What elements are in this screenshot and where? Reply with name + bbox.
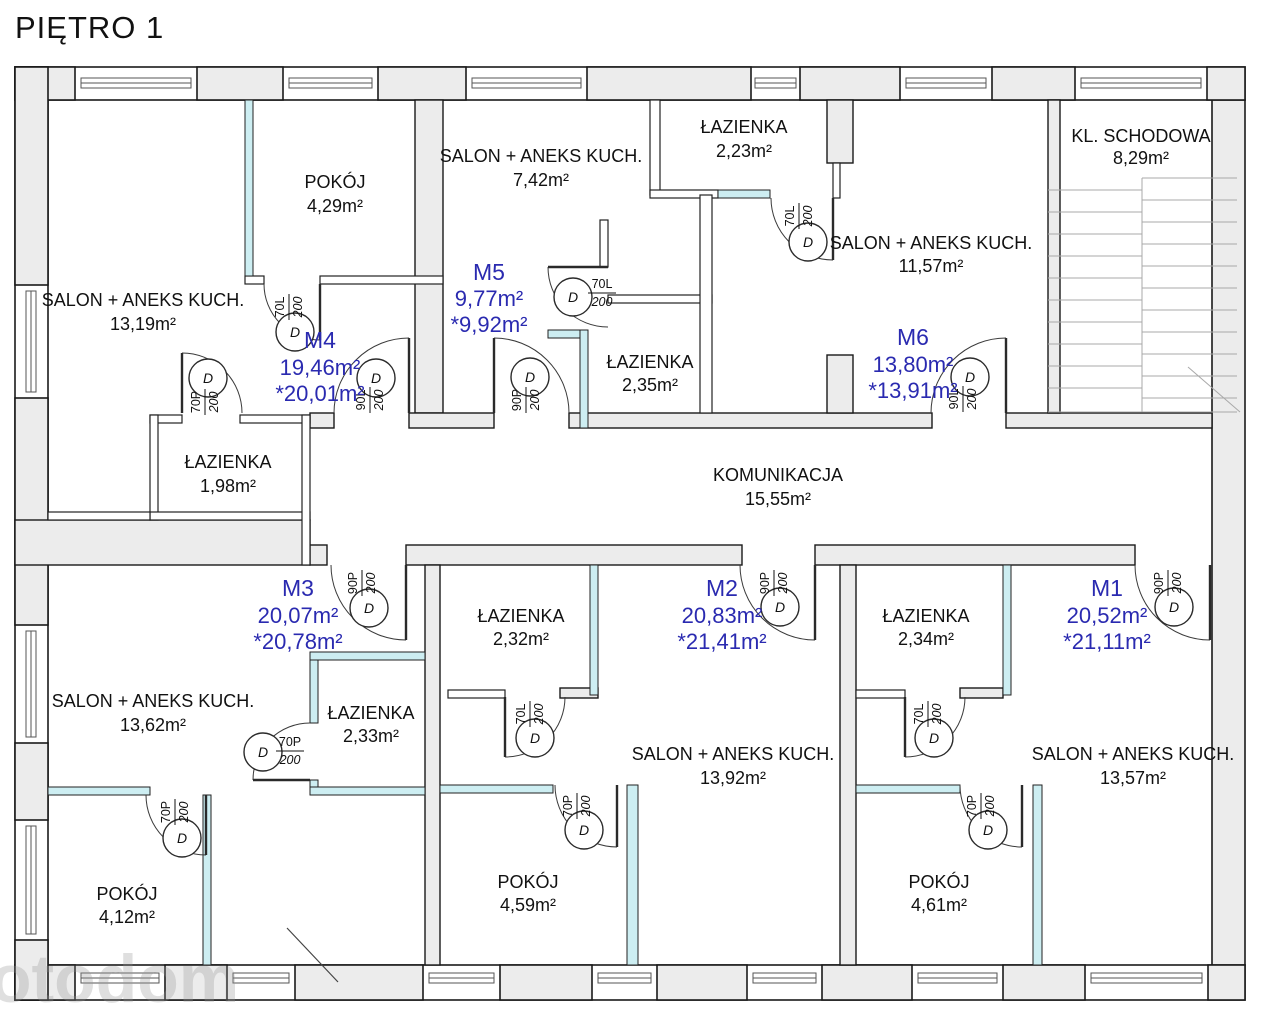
door-height-label: 200 [207, 392, 221, 414]
apartment-area-alt-m5: *9,92m² [450, 312, 527, 337]
door-size-label: 90P [758, 572, 772, 594]
room-label-pokoj-m3: POKÓJ [96, 883, 157, 904]
room-label-salon-m1: SALON + ANEKS KUCH. [1032, 744, 1235, 764]
room-area-salon-m4: 13,19m² [110, 314, 176, 334]
door-height-label: 200 [177, 802, 191, 824]
room-label-klatka-schodowa: KL. SCHODOWA [1071, 126, 1210, 146]
door-height-label: 200 [279, 753, 301, 767]
door-symbol: D [177, 830, 187, 846]
apartment-area-m4: 19,46m² [280, 355, 361, 380]
apartment-id-m4: M4 [304, 327, 336, 353]
room-label-salon-m5: SALON + ANEKS KUCH. [440, 146, 643, 166]
door-symbol: D [371, 370, 381, 386]
door-size-label: 70L [514, 704, 528, 725]
apartment-area-m1: 20,52m² [1067, 603, 1148, 628]
room-area-salon-m2: 13,92m² [700, 768, 766, 788]
room-area-lazienka-m6: 2,23m² [716, 141, 772, 161]
door-height-label: 200 [528, 390, 542, 412]
apartment-area-alt-m1: *21,11m² [1063, 629, 1151, 654]
room-label-salon-m4: SALON + ANEKS KUCH. [42, 290, 245, 310]
apartment-id-m3: M3 [282, 575, 314, 601]
room-area-pokoj-m3: 4,12m² [99, 907, 155, 927]
watermark: otodom [0, 941, 239, 1017]
door-symbol: D [965, 369, 975, 385]
door-size-label: 70P [561, 795, 575, 817]
door-symbol: D [579, 822, 589, 838]
door-symbol: D [983, 822, 993, 838]
apartment-area-m5: 9,77m² [455, 286, 523, 311]
room-area-komunikacja: 15,55m² [745, 489, 811, 509]
door-symbol: D [525, 369, 535, 385]
staircase [1048, 178, 1240, 412]
door-symbol: D [258, 744, 268, 760]
door-size-label: 90P [1152, 572, 1166, 594]
page-title: PIĘTRO 1 [15, 10, 164, 45]
door-symbol: D [568, 289, 578, 305]
room-area-lazienka-m3: 2,33m² [343, 726, 399, 746]
room-area-lazienka-m1: 2,34m² [898, 629, 954, 649]
apartment-id-m1: M1 [1091, 575, 1123, 601]
room-area-salon-m5: 7,42m² [513, 170, 569, 190]
room-label-lazienka-m6: ŁAZIENKA [700, 117, 787, 137]
door-symbol: D [290, 324, 300, 340]
room-label-pokoj-m1: POKÓJ [908, 871, 969, 892]
apartment-area-m3: 20,07m² [258, 603, 339, 628]
room-area-lazienka-m2: 2,32m² [493, 629, 549, 649]
apartment-id-m6: M6 [897, 324, 929, 350]
room-area-salon-m1: 13,57m² [1100, 768, 1166, 788]
door-size-label: 70L [783, 206, 797, 227]
door-height-label: 200 [965, 389, 979, 411]
right-exterior-wall [1212, 100, 1245, 965]
room-label-pokoj-m4: POKÓJ [304, 171, 365, 192]
room-label-lazienka-m3: ŁAZIENKA [327, 703, 414, 723]
apartment-area-alt-m2: *21,41m² [677, 629, 766, 654]
room-area-lazienka-m5: 2,35m² [622, 375, 678, 395]
apartment-area-m2: 20,83m² [682, 603, 763, 628]
room-area-pokoj-m4: 4,29m² [307, 196, 363, 216]
door-height-label: 200 [364, 573, 378, 595]
apartment-area-m6: 13,80m² [873, 352, 954, 377]
door-symbol: D [364, 600, 374, 616]
apartment-area-alt-m4: *20,01m² [275, 381, 364, 406]
floor-plan-page: PIĘTRO 1 [0, 0, 1280, 1019]
room-area-pokoj-m2: 4,59m² [500, 895, 556, 915]
door-symbol: D [929, 730, 939, 746]
apartment-id-m5: M5 [473, 259, 505, 285]
room-area-salon-m3: 13,62m² [120, 715, 186, 735]
apartment-id-m2: M2 [706, 575, 738, 601]
door-symbol: D [530, 730, 540, 746]
door-symbol: D [775, 599, 785, 615]
room-label-lazienka-m1: ŁAZIENKA [882, 606, 969, 626]
room-label-pokoj-m2: POKÓJ [497, 871, 558, 892]
door-height-label: 200 [1170, 573, 1184, 595]
door-height-label: 200 [801, 206, 815, 228]
apartment-area-alt-m6: *13,91m² [868, 378, 957, 403]
door-size-label: 70P [159, 801, 173, 823]
door-size-label: 70L [592, 277, 613, 291]
door-height-label: 200 [591, 295, 613, 309]
door-height-label: 200 [579, 796, 593, 818]
room-label-komunikacja: KOMUNIKACJA [713, 465, 843, 485]
room-label-salon-m3: SALON + ANEKS KUCH. [52, 691, 255, 711]
door-size-label: 70L [273, 297, 287, 318]
room-area-salon-m6: 11,57m² [899, 256, 964, 276]
door-size-label: 70L [912, 704, 926, 725]
door-size-label: 90P [510, 389, 524, 411]
room-label-salon-m6: SALON + ANEKS KUCH. [830, 233, 1033, 253]
door-size-label: 70P [965, 795, 979, 817]
door-symbol: D [803, 234, 813, 250]
door-symbol: D [203, 370, 213, 386]
door-height-label: 200 [930, 704, 944, 726]
door-height-label: 200 [532, 704, 546, 726]
door-size-label: 70P [189, 391, 203, 413]
door-height-label: 200 [291, 297, 305, 319]
room-area-pokoj-m1: 4,61m² [911, 895, 967, 915]
door-height-label: 200 [776, 573, 790, 595]
door-size-label: 90P [346, 572, 360, 594]
door-size-label: 70P [279, 735, 301, 749]
floor-plan-canvas: PIĘTRO 1 [0, 0, 1280, 1019]
door-height-label: 200 [983, 796, 997, 818]
apartment-area-alt-m3: *20,78m² [253, 629, 342, 654]
room-label-lazienka-m4: ŁAZIENKA [184, 452, 271, 472]
room-label-salon-m2: SALON + ANEKS KUCH. [632, 744, 835, 764]
room-label-lazienka-m2: ŁAZIENKA [477, 606, 564, 626]
room-label-lazienka-m5: ŁAZIENKA [606, 352, 693, 372]
room-area-klatka-schodowa: 8,29m² [1113, 148, 1169, 168]
room-area-lazienka-m4: 1,98m² [200, 476, 256, 496]
door-symbol: D [1169, 599, 1179, 615]
door-height-label: 200 [372, 390, 386, 412]
